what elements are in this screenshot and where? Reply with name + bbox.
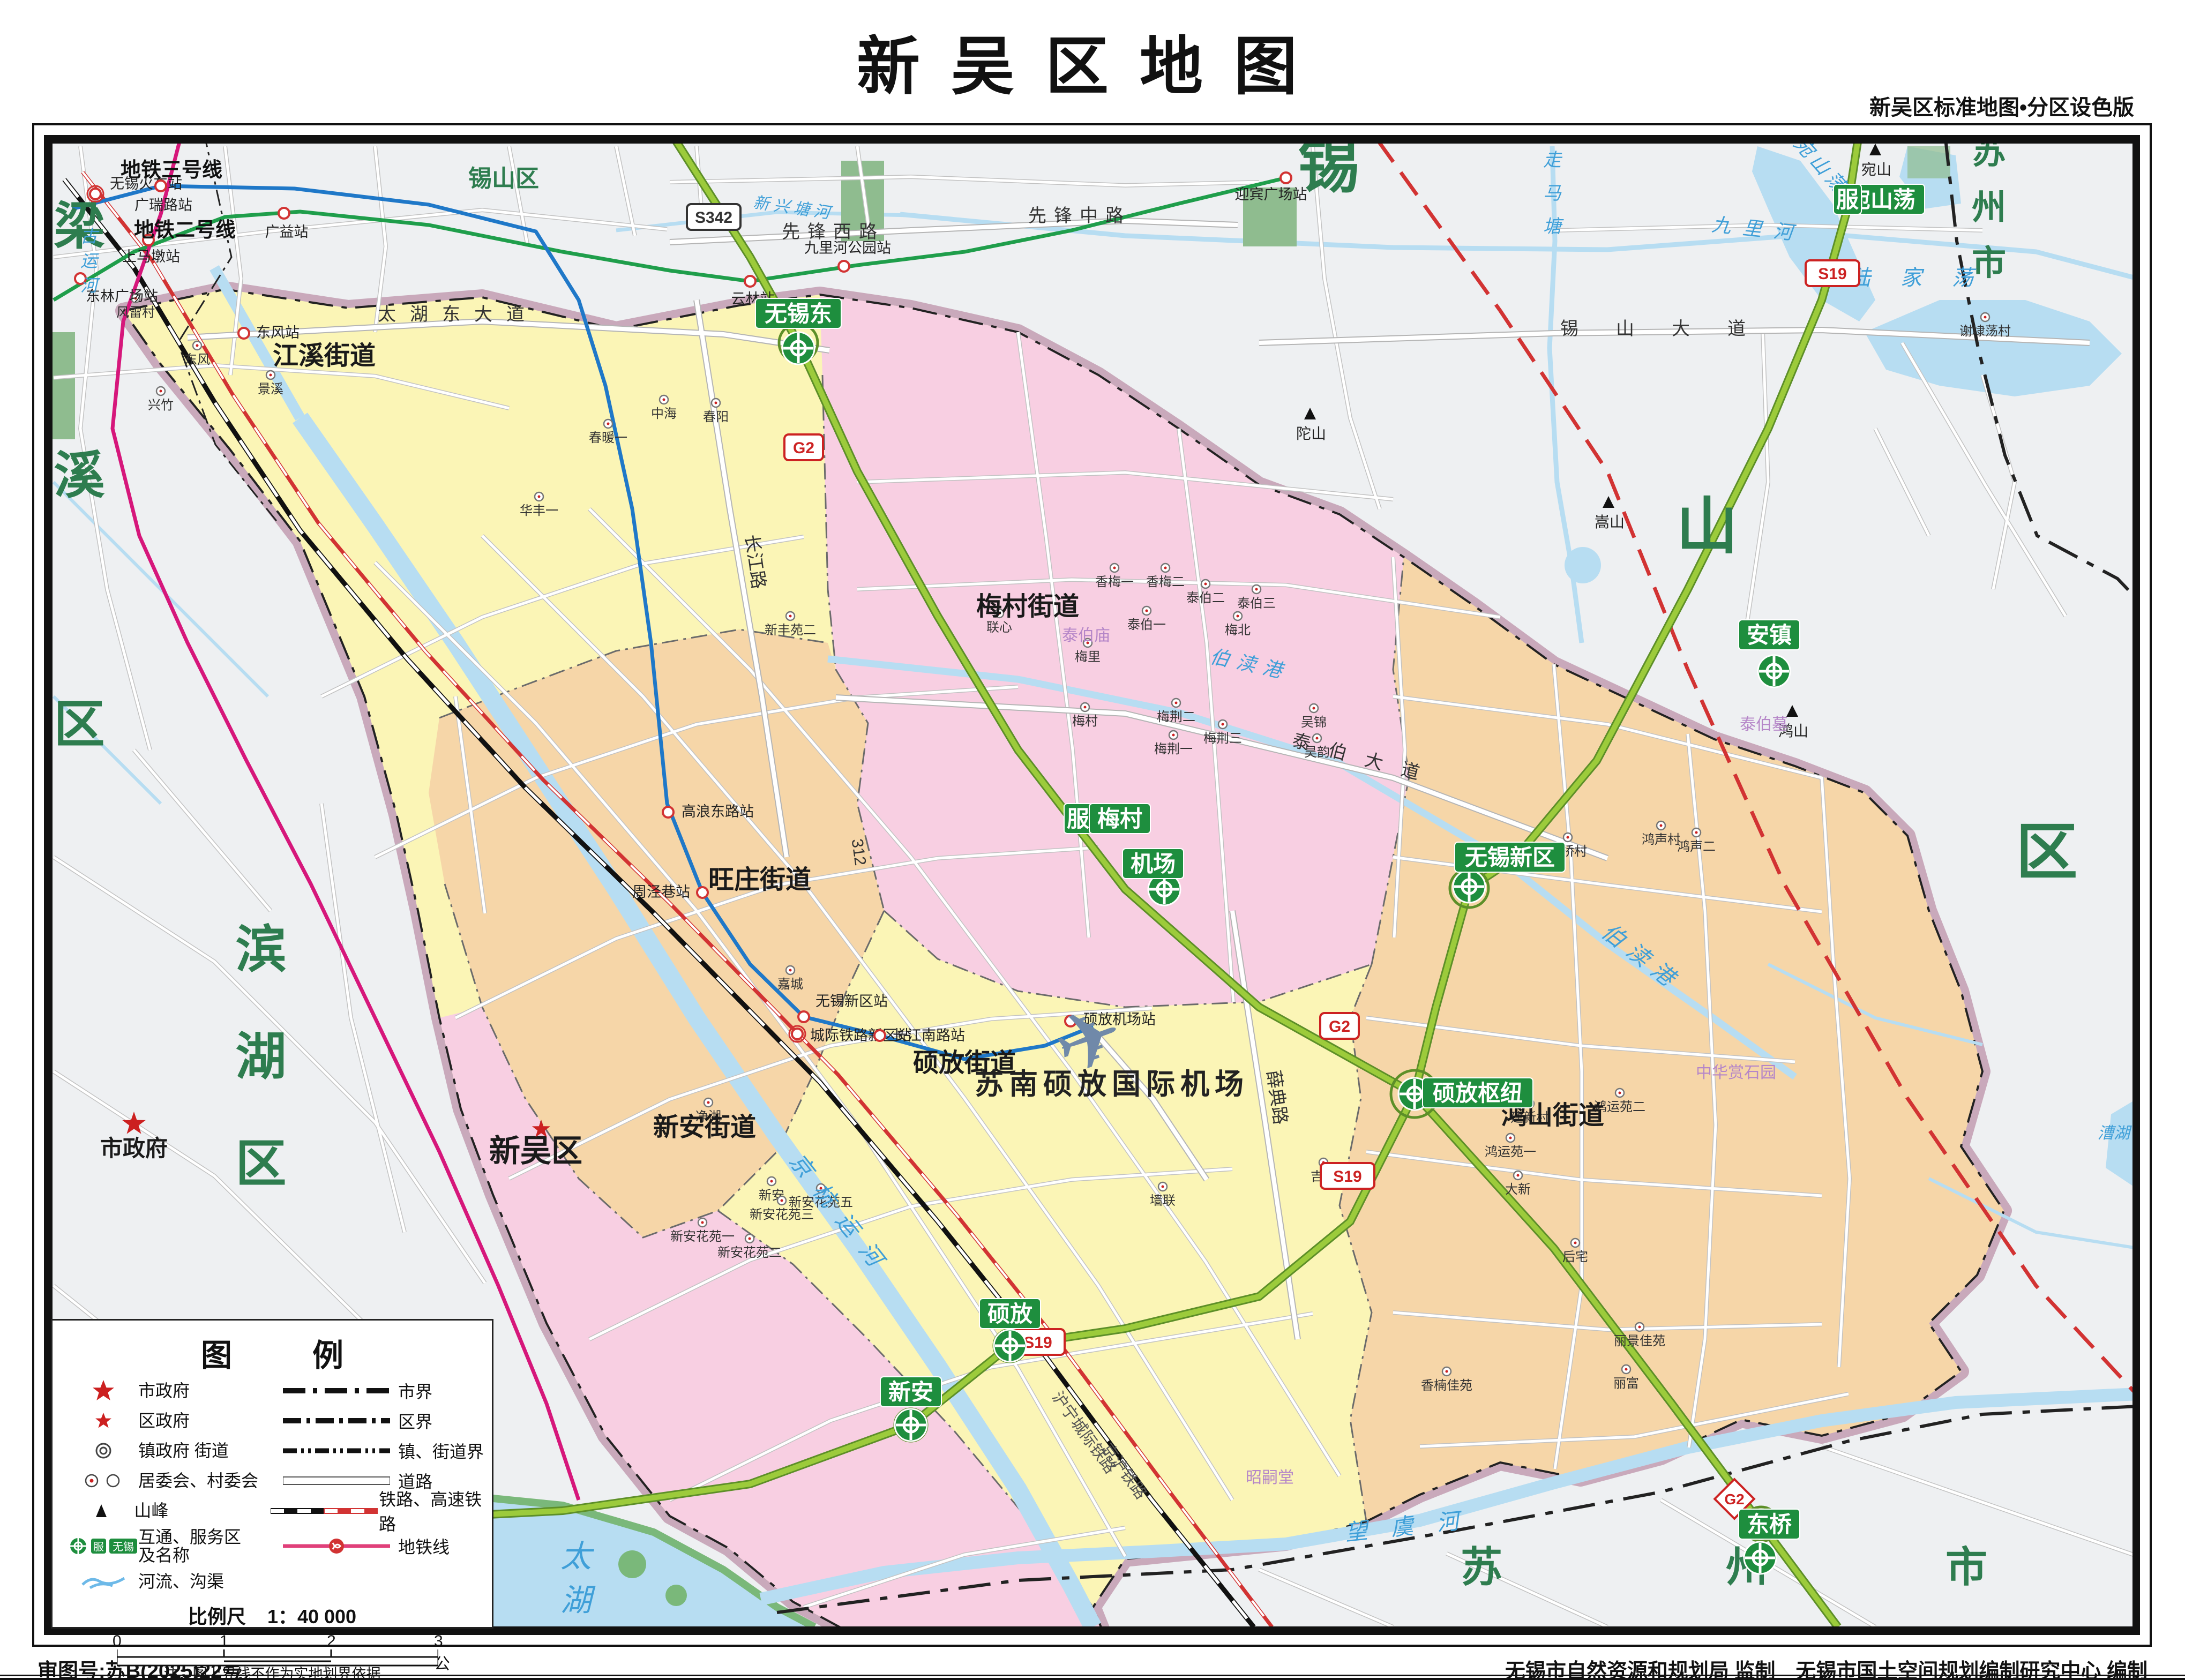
village-label: 梅荆二	[1157, 710, 1195, 724]
metro-symbol	[283, 1536, 398, 1556]
map-label: 区	[54, 696, 104, 753]
station-dot	[745, 276, 755, 287]
map-label: 地铁三号线	[121, 159, 222, 182]
village-label: 新安花苑一	[670, 1229, 735, 1244]
village-label: 春暖一	[589, 431, 627, 445]
station-label: 上马墩站	[122, 249, 180, 265]
village-label: 梅荆一	[1154, 742, 1193, 756]
map-label: 先锋中路	[1028, 206, 1131, 226]
village-label: 梅里	[1075, 650, 1101, 664]
station-label: 广瑞路站	[134, 197, 192, 213]
badge-label: 梅村	[1097, 806, 1142, 831]
legend-title: 图例	[53, 1330, 492, 1375]
map-label: 旺庄街道	[708, 866, 811, 894]
station-dot	[792, 1029, 803, 1039]
station-dot	[798, 1011, 809, 1022]
svg-text:S342: S342	[695, 209, 732, 227]
town-gov-icon	[69, 1440, 138, 1461]
station-label: 无锡新区站	[815, 993, 888, 1009]
map-label: 马	[1543, 184, 1562, 204]
badge-label: 无锡东	[765, 301, 832, 326]
village-label: 墙联	[1150, 1194, 1176, 1208]
map-label: 古	[80, 227, 100, 246]
map-label: 地铁二号线	[134, 219, 236, 242]
peak-icon	[69, 1501, 134, 1520]
map-label: 塘	[1543, 217, 1564, 237]
district-boundary-symbol	[283, 1417, 398, 1424]
map-label: 走	[1543, 151, 1563, 170]
map-label: 中华赏石园	[1696, 1064, 1776, 1082]
village-label: 吴锦	[1301, 715, 1327, 730]
badge-label: 机场	[1131, 851, 1176, 876]
village-label: 梅荆三	[1203, 731, 1242, 746]
badge-label: 服	[1836, 187, 1859, 212]
star-large-icon	[69, 1378, 138, 1404]
map-label: 新吴区	[489, 1134, 582, 1168]
village-label: 泰伯二	[1186, 591, 1225, 605]
legend-row-district-gov: 区政府 区界	[69, 1406, 492, 1435]
svg-text:无锡: 无锡	[113, 1541, 134, 1553]
svg-text:S19: S19	[1333, 1168, 1361, 1186]
station-dot	[663, 807, 674, 817]
map-label: 锡	[1298, 144, 1359, 200]
village-label: 景溪	[258, 382, 283, 396]
svg-text:G2: G2	[793, 439, 814, 457]
svg-text:S19: S19	[1023, 1334, 1052, 1352]
station-label: 周泾巷站	[632, 884, 690, 900]
town-boundary-symbol	[283, 1447, 398, 1454]
village-label: 嘉城	[777, 977, 803, 992]
village-label: 东风	[184, 352, 210, 367]
scale-bar: 0 1 2 3公里	[117, 1632, 438, 1657]
map-label: 泰伯庙	[1062, 627, 1110, 644]
village-label: 后宅	[1562, 1250, 1588, 1264]
village-label: 风雷村	[116, 305, 155, 320]
station-dot	[279, 208, 289, 219]
legend-box: 图例 市政府 市界 区政府 区界 镇政府 街道 镇、街道界 居委会、村委会 道路	[51, 1319, 493, 1629]
peak-label: 嵩山	[1595, 514, 1625, 530]
svg-text:S19: S19	[1818, 265, 1846, 283]
map-label: 苏	[1972, 144, 2006, 171]
village-label: 中海	[651, 407, 677, 421]
badge-label: 东桥	[1747, 1512, 1792, 1537]
legend-row-town-gov: 镇政府 街道 镇、街道界	[69, 1436, 492, 1465]
map-label: 运	[80, 251, 99, 271]
village-label: 春阳	[703, 410, 729, 424]
scale-line: 比例尺1：40 000	[53, 1601, 492, 1629]
village-label: 鸿声二	[1677, 839, 1716, 854]
village-label: 兴竹	[148, 398, 174, 412]
map-label: 溪	[54, 447, 105, 504]
map-page: 新吴区地图 新吴区标准地图•分区设色版	[0, 0, 2185, 1680]
station-dot	[155, 181, 166, 191]
interchange-icons: 服 无锡	[69, 1534, 138, 1558]
map-label: 滨	[235, 921, 286, 978]
station-label: 长江南路站	[893, 1027, 965, 1044]
page-title: 新吴区地图	[0, 15, 2185, 107]
railway-symbol	[271, 1506, 379, 1515]
svg-text:G2: G2	[1724, 1491, 1744, 1507]
map-label: 市	[1945, 1544, 1987, 1591]
map-label: 陆家荡	[1849, 266, 2003, 290]
legend-row-river: 河流、沟渠	[69, 1567, 492, 1596]
village-label: 泰伯一	[1127, 618, 1166, 632]
village-label: 香楠佳苑	[1421, 1378, 1472, 1393]
village-label: 香梅一	[1095, 575, 1134, 589]
station-label: 高浪东路站	[682, 804, 754, 820]
village-label: 鸿运苑一	[1485, 1145, 1536, 1159]
map-label: 太湖东大道	[378, 304, 538, 325]
station-label: 九里河公园站	[804, 240, 891, 256]
village-label: 大新	[1505, 1182, 1531, 1197]
svg-text:G2: G2	[1329, 1018, 1350, 1036]
village-label: 泰伯三	[1237, 596, 1276, 611]
village-label: 梅北	[1225, 623, 1251, 637]
village-label: 新丰苑二	[765, 623, 816, 637]
map-label: 州	[1972, 189, 2006, 227]
station-dot	[238, 328, 249, 339]
city-boundary-symbol	[283, 1387, 398, 1394]
road-symbol	[283, 1475, 398, 1486]
station-dot	[90, 189, 101, 199]
station-label: 广益站	[265, 224, 309, 240]
map-label: 湖	[560, 1583, 596, 1618]
map-label: 区	[2016, 819, 2077, 887]
village-label: 梅村	[1072, 714, 1098, 729]
village-label: 丽富	[1613, 1376, 1639, 1391]
river-icon	[69, 1571, 138, 1592]
map-label: 苏	[1461, 1544, 1502, 1591]
village-label: 新安花苑三	[750, 1207, 814, 1222]
map-label: 太	[560, 1539, 595, 1574]
map-label: 市政府	[100, 1136, 168, 1161]
peak-label: 陀山	[1296, 425, 1326, 442]
village-label: 联心	[986, 620, 1012, 635]
map-label: 锡山区	[468, 166, 539, 192]
map-label: 区	[235, 1136, 286, 1192]
village-label: 新安花苑二	[717, 1246, 782, 1260]
village-label: 香梅二	[1146, 575, 1185, 589]
badge-label: 服	[1067, 806, 1089, 831]
star-small-icon	[69, 1411, 138, 1430]
map-label: 梅村街道	[976, 592, 1079, 621]
village-label: 鸿声村	[1642, 832, 1680, 847]
village-label: 华丰一	[520, 504, 558, 518]
badge-label: 无锡新区	[1465, 845, 1555, 870]
peak-label: 宛山	[1861, 161, 1891, 178]
map-label: 新安街道	[653, 1113, 756, 1142]
map-label: 锡山大道	[1560, 319, 1783, 339]
map-label: 先锋西路	[782, 222, 885, 242]
svg-text:服: 服	[93, 1541, 104, 1553]
legend-row-peak: 山峰 铁路、高速铁路	[69, 1496, 492, 1525]
station-dot	[697, 887, 708, 898]
map-label: 泰伯墓	[1740, 716, 1788, 733]
map-label: 昭嗣堂	[1246, 1469, 1294, 1487]
station-dot	[839, 261, 849, 272]
map-label: 江溪街道	[273, 342, 376, 370]
committee-icon	[69, 1471, 138, 1490]
village-label: 谢埭荡村	[1959, 324, 2011, 339]
badge-label: 新安	[888, 1379, 933, 1405]
station-label: 迎宾广场站	[1235, 186, 1307, 202]
map-label: 漕湖	[2098, 1124, 2132, 1142]
map-label: 山	[1676, 493, 1738, 561]
legend-row-city-gov: 市政府 市界	[69, 1376, 492, 1405]
station-dot	[874, 1030, 885, 1041]
badge-label: 硕放	[987, 1301, 1032, 1326]
map-label: 湖	[235, 1029, 286, 1085]
badge-label: 硕放枢纽	[1433, 1081, 1523, 1106]
station-dot	[1281, 172, 1291, 183]
badge-label: 安镇	[1747, 622, 1792, 648]
map-label: 312	[848, 838, 870, 867]
page-subtitle: 新吴区标准地图•分区设色版	[1869, 90, 2134, 121]
station-label: 东风站	[256, 325, 300, 341]
village-label: 丽景佳苑	[1614, 1334, 1665, 1348]
